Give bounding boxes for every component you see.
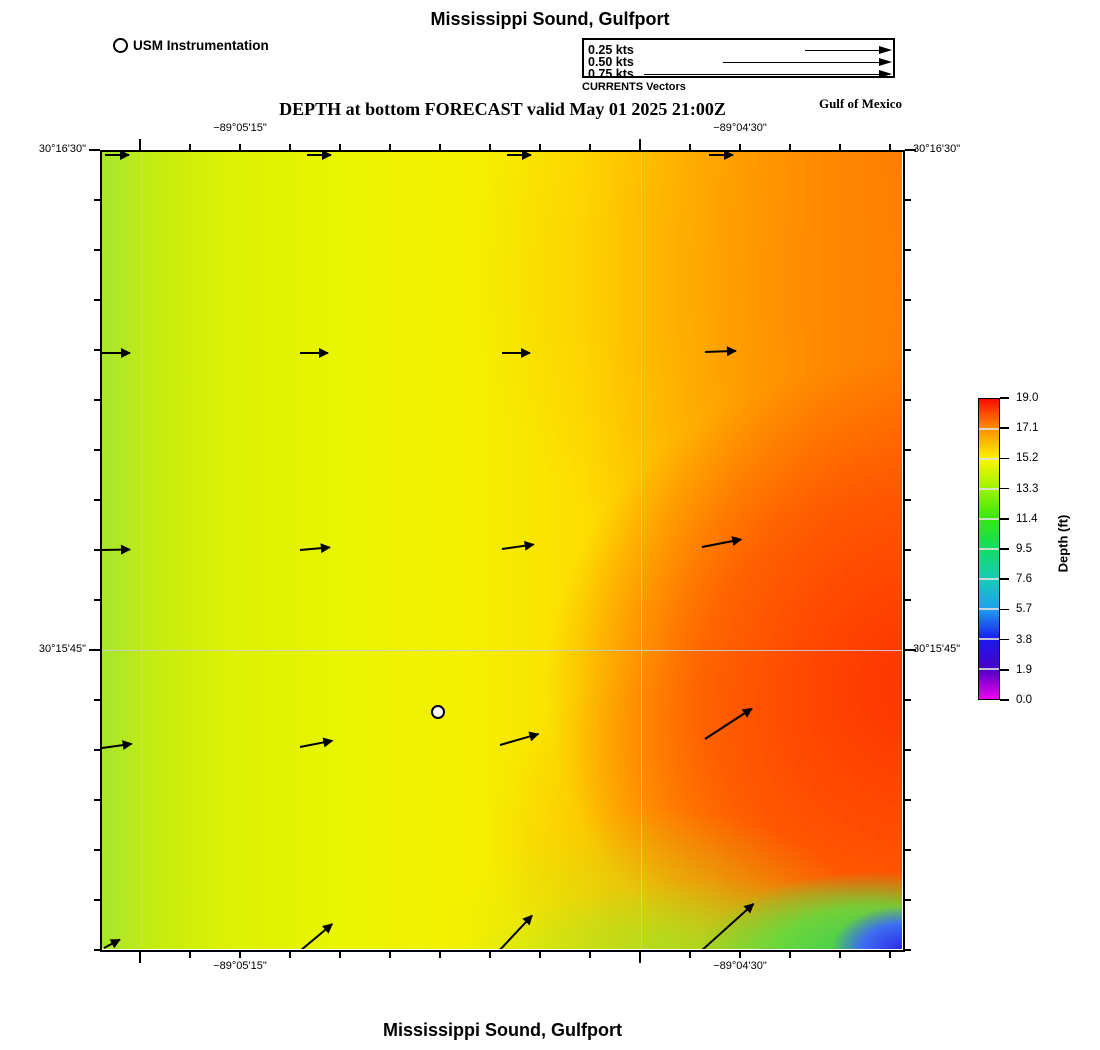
- current-vector: [102, 549, 130, 551]
- colorbar-separator: [979, 428, 999, 430]
- gridline-lat-1: [102, 650, 902, 652]
- y-axis-tick: [905, 249, 911, 251]
- current-vector: [704, 708, 752, 740]
- y-axis-tick: [905, 849, 911, 851]
- vector-legend-entry-label: 0.75 kts: [588, 68, 634, 80]
- colorbar-separator: [979, 548, 999, 550]
- vector-legend-arrow: [805, 50, 890, 51]
- colorbar-tick: [1000, 397, 1009, 399]
- lat-label-right: 30°16'30": [913, 143, 960, 155]
- y-axis-tick: [905, 349, 911, 351]
- colorbar-tick: [1000, 699, 1009, 701]
- colorbar-separator: [979, 488, 999, 490]
- current-vector: [105, 154, 129, 156]
- colorbar-tick-label: 19.0: [1016, 392, 1038, 404]
- colorbar-separator: [979, 638, 999, 640]
- lat-label-left: 30°15'45": [6, 643, 86, 655]
- x-axis-tick: [739, 952, 741, 958]
- current-vector: [709, 154, 733, 156]
- lon-label-top: −89°05'15": [213, 122, 267, 134]
- lat-label-left: 30°16'30": [6, 143, 86, 155]
- x-axis-tick: [489, 952, 491, 958]
- current-vector: [300, 740, 333, 748]
- colorbar-tick-label: 11.4: [1016, 513, 1038, 525]
- y-axis-tick: [905, 199, 911, 201]
- x-axis-tick: [839, 952, 841, 958]
- y-axis-tick: [905, 949, 911, 951]
- current-vector: [497, 915, 533, 949]
- x-axis-tick: [539, 952, 541, 958]
- colorbar-separator: [979, 608, 999, 610]
- y-axis-tick: [905, 699, 911, 701]
- station-legend: USM Instrumentation: [113, 36, 269, 54]
- x-axis-tick: [439, 952, 441, 958]
- vector-legend-caption: CURRENTS Vectors: [582, 81, 686, 93]
- y-axis-tick: [905, 449, 911, 451]
- current-vector: [500, 733, 539, 746]
- current-vector: [102, 743, 132, 749]
- forecast-subtitle: DEPTH at bottom FORECAST valid May 01 20…: [100, 99, 905, 120]
- current-vector: [699, 903, 754, 949]
- colorbar-tick-label: 15.2: [1016, 452, 1038, 464]
- current-vector: [102, 352, 130, 354]
- x-axis-tick: [239, 952, 241, 958]
- colorbar-tick-label: 3.8: [1016, 634, 1032, 646]
- y-axis-tick: [905, 499, 911, 501]
- colorbar-tick: [1000, 639, 1009, 641]
- colorbar-tick-label: 13.3: [1016, 483, 1038, 495]
- colorbar-title: Depth (ft): [1055, 515, 1070, 573]
- x-axis-tick: [889, 952, 891, 958]
- page-title: Mississippi Sound, Gulfport: [0, 9, 1100, 30]
- current-vector: [502, 544, 534, 550]
- vector-legend-arrow: [723, 62, 890, 63]
- region-label: Gulf of Mexico: [819, 96, 902, 112]
- current-vector: [300, 546, 330, 551]
- current-vector: [705, 350, 736, 353]
- gridline-lon-2: [641, 152, 643, 949]
- current-vector: [507, 154, 531, 156]
- y-axis-tick: [905, 549, 911, 551]
- y-axis-tick: [905, 799, 911, 801]
- colorbar-tick-label: 9.5: [1016, 543, 1032, 555]
- y-axis-tick: [905, 149, 916, 151]
- current-vector: [299, 923, 332, 949]
- colorbar-tick: [1000, 609, 1009, 611]
- current-vector: [702, 538, 742, 548]
- x-axis-tick: [589, 952, 591, 958]
- x-axis-tick: [789, 952, 791, 958]
- x-axis-tick: [139, 139, 141, 150]
- lon-label-bottom: −89°05'15": [213, 960, 267, 972]
- y-axis-tick: [905, 899, 911, 901]
- footer-title: Mississippi Sound, Gulfport: [100, 1020, 905, 1041]
- colorbar-separator: [979, 668, 999, 670]
- lon-label-bottom: −89°04'30": [713, 960, 767, 972]
- lat-label-right: 30°15'45": [913, 643, 960, 655]
- station-legend-label: USM Instrumentation: [133, 38, 269, 53]
- station-marker-icon: [113, 38, 128, 53]
- colorbar-tick-label: 5.7: [1016, 603, 1032, 615]
- x-axis-tick: [389, 952, 391, 958]
- colorbar-separator: [979, 518, 999, 520]
- colorbar-tick-label: 7.6: [1016, 573, 1032, 585]
- depth-colorbar: [978, 398, 1000, 700]
- current-vector: [502, 352, 530, 354]
- current-vector: [307, 154, 331, 156]
- colorbar-tick-label: 0.0: [1016, 694, 1032, 706]
- usm-station-marker: [431, 705, 445, 719]
- colorbar-tick: [1000, 669, 1009, 671]
- depth-heatmap: [102, 152, 902, 949]
- current-vector: [300, 352, 328, 354]
- y-axis-tick: [89, 649, 100, 651]
- colorbar-tick: [1000, 518, 1009, 520]
- lon-label-top: −89°04'30": [713, 122, 767, 134]
- y-axis-tick: [89, 149, 100, 151]
- colorbar-tick-label: 1.9: [1016, 664, 1032, 676]
- y-axis-tick: [905, 649, 916, 651]
- map-frame: [100, 150, 905, 952]
- y-axis-tick: [905, 749, 911, 751]
- gridline-lon-1: [141, 152, 143, 949]
- vector-legend-arrow: [644, 74, 890, 75]
- colorbar-tick: [1000, 458, 1009, 460]
- current-vector: [104, 939, 121, 949]
- colorbar-separator: [979, 578, 999, 580]
- vector-speed-legend: 0.25 kts0.50 kts0.75 kts: [582, 38, 895, 78]
- colorbar-tick-label: 17.1: [1016, 422, 1038, 434]
- y-axis-tick: [905, 399, 911, 401]
- colorbar-separator: [979, 458, 999, 460]
- x-axis-tick: [639, 139, 641, 150]
- colorbar-tick: [1000, 488, 1009, 490]
- y-axis-tick: [905, 599, 911, 601]
- y-axis-tick: [905, 299, 911, 301]
- colorbar-tick: [1000, 578, 1009, 580]
- x-axis-tick: [639, 952, 641, 963]
- x-axis-tick: [289, 952, 291, 958]
- x-axis-tick: [339, 952, 341, 958]
- colorbar-tick: [1000, 548, 1009, 550]
- x-axis-tick: [139, 952, 141, 963]
- colorbar-tick: [1000, 427, 1009, 429]
- x-axis-tick: [189, 952, 191, 958]
- x-axis-tick: [689, 952, 691, 958]
